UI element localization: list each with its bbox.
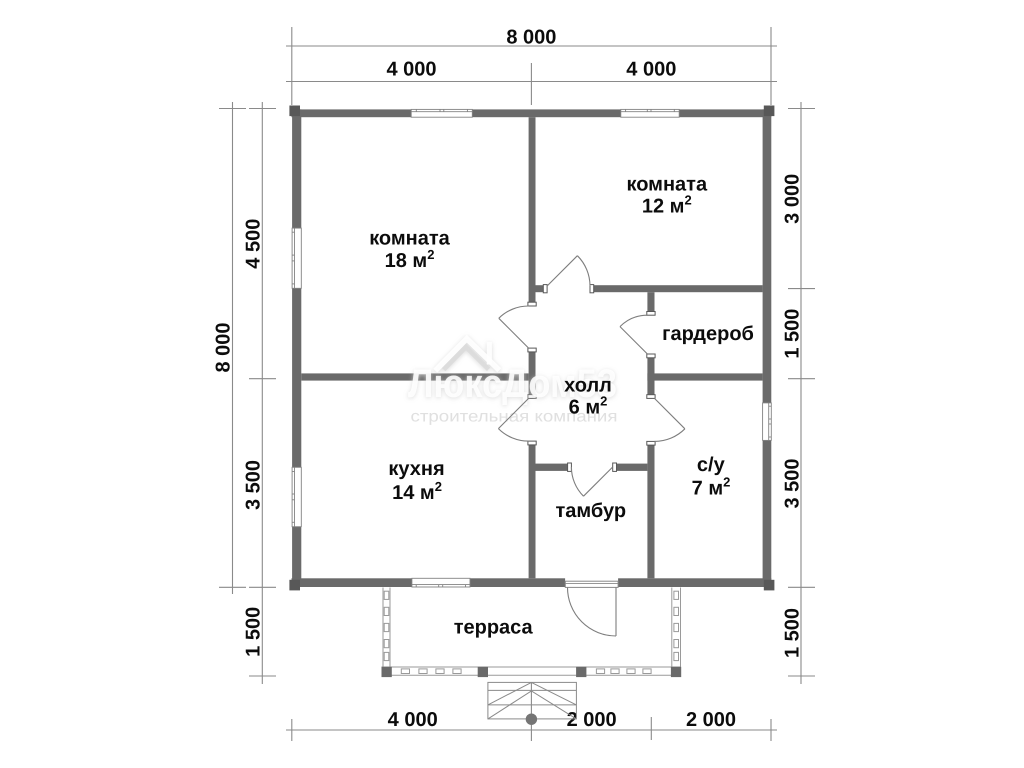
svg-text:комната: комната — [626, 174, 707, 196]
svg-text:7 м2: 7 м2 — [692, 475, 731, 500]
svg-text:3 000: 3 000 — [782, 174, 804, 224]
svg-text:тамбур: тамбур — [555, 500, 626, 522]
svg-text:кухня: кухня — [388, 458, 444, 480]
svg-text:1 500: 1 500 — [243, 607, 265, 657]
svg-text:4 000: 4 000 — [388, 709, 438, 731]
svg-text:гардероб: гардероб — [662, 323, 754, 345]
svg-text:терраса: терраса — [454, 617, 534, 639]
svg-text:с/у: с/у — [697, 454, 726, 476]
svg-text:4 500: 4 500 — [243, 219, 265, 269]
svg-text:8 000: 8 000 — [213, 322, 235, 372]
svg-text:1 500: 1 500 — [782, 309, 804, 359]
svg-text:14 м2: 14 м2 — [392, 479, 442, 504]
svg-text:12 м2: 12 м2 — [642, 193, 692, 218]
svg-text:4 000: 4 000 — [626, 59, 676, 81]
svg-text:4 000: 4 000 — [386, 59, 436, 81]
svg-text:2 000: 2 000 — [686, 709, 736, 731]
svg-text:3 500: 3 500 — [243, 460, 265, 510]
svg-text:1 500: 1 500 — [782, 608, 804, 658]
svg-text:комната: комната — [369, 227, 450, 249]
svg-text:3 500: 3 500 — [782, 458, 804, 508]
svg-text:18 м2: 18 м2 — [385, 247, 435, 272]
svg-text:8 000: 8 000 — [506, 27, 556, 49]
svg-text:2 000: 2 000 — [567, 709, 617, 731]
